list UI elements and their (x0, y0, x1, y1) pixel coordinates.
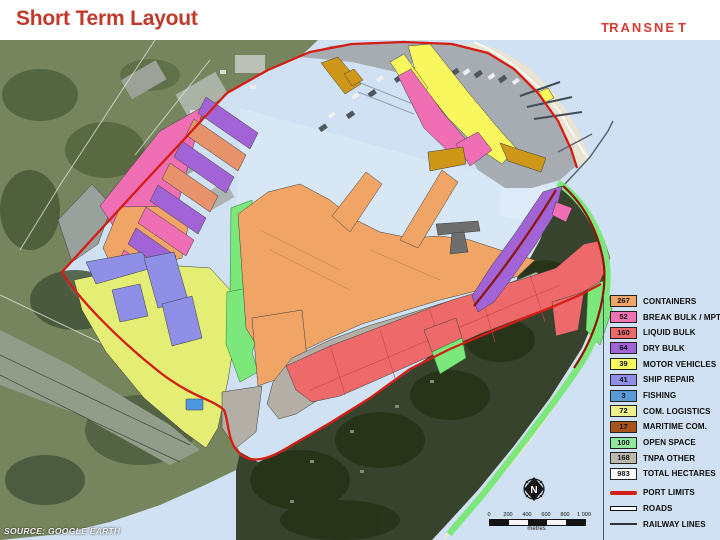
transnet-logo: TRANSNET (599, 20, 686, 35)
legend-swatch: 100 (610, 437, 637, 449)
legend-item: 3FISHING (610, 389, 720, 402)
legend-swatch: 41 (610, 374, 637, 386)
legend-swatch: 168 (610, 452, 637, 464)
legend-label: LIQUID BULK (643, 328, 696, 337)
logo-letter: R (609, 20, 620, 35)
legend-swatch: 983 (610, 468, 637, 480)
slide-header: Short Term Layout TRANSNET (0, 0, 720, 40)
scale-tick: 600 (537, 512, 555, 518)
legend-label: MARITIME COM. (643, 422, 707, 431)
legend-line-swatch (610, 491, 637, 495)
legend-line-item: RAILWAY LINES (610, 519, 720, 530)
slide: Short Term Layout TRANSNET (0, 0, 720, 540)
scale-tick: 400 (518, 512, 536, 518)
legend-label: TOTAL HECTARES (643, 469, 716, 478)
legend-area-items: 267CONTAINERS52BREAK BULK / MPT160LIQUID… (610, 295, 720, 480)
logo-letter: E (665, 20, 676, 35)
legend-swatch: 17 (610, 421, 637, 433)
legend-item: 100OPEN SPACE (610, 436, 720, 449)
legend-item: 983TOTAL HECTARES (610, 468, 720, 481)
legend-item: 267CONTAINERS (610, 295, 720, 308)
logo-letter: T (676, 20, 686, 35)
legend-line-item: PORT LIMITS (610, 487, 720, 498)
scale-bar: 02004006008001 000 metres (489, 512, 599, 534)
scale-tick: 1 000 (575, 512, 593, 518)
legend-line-swatch (610, 523, 637, 525)
legend-label: ROADS (643, 504, 672, 513)
page-title: Short Term Layout (16, 7, 198, 31)
legend-swatch: 3 (610, 390, 637, 402)
legend-swatch: 267 (610, 295, 637, 307)
legend-label: SHIP REPAIR (643, 375, 694, 384)
scale-unit-label: metres (489, 526, 584, 532)
legend-label: COM. LOGISTICS (643, 407, 711, 416)
legend-swatch: 160 (610, 327, 637, 339)
legend-item: 39MOTOR VEHICLES (610, 358, 720, 371)
legend-label: FISHING (643, 391, 676, 400)
source-note: SOURCE: GOOGLE EARTH (4, 526, 120, 536)
scale-tick: 200 (499, 512, 517, 518)
logo-letter: S (643, 20, 654, 35)
legend-item: 41SHIP REPAIR (610, 373, 720, 386)
legend-label: PORT LIMITS (643, 488, 695, 497)
scale-tick: 0 (480, 512, 498, 518)
legend: 267CONTAINERS52BREAK BULK / MPT160LIQUID… (603, 295, 720, 540)
legend-item: 17MARITIME COM. (610, 421, 720, 434)
logo-letter: A (621, 20, 632, 35)
legend-item: 64DRY BULK (610, 342, 720, 355)
legend-label: BREAK BULK / MPT (643, 313, 720, 322)
legend-swatch: 39 (610, 358, 637, 370)
legend-label: RAILWAY LINES (643, 520, 706, 529)
logo-letter: N (654, 20, 665, 35)
north-arrow: N (517, 474, 551, 513)
legend-line-swatch (610, 506, 637, 511)
scale-tick: 800 (556, 512, 574, 518)
legend-swatch: 72 (610, 405, 637, 417)
legend-item: 52BREAK BULK / MPT (610, 311, 720, 324)
legend-item: 168TNPA OTHER (610, 452, 720, 465)
legend-label: MOTOR VEHICLES (643, 360, 716, 369)
legend-label: TNPA OTHER (643, 454, 695, 463)
north-label: N (530, 485, 537, 496)
legend-label: OPEN SPACE (643, 438, 696, 447)
scale-bar-segments (489, 519, 586, 526)
legend-label: CONTAINERS (643, 297, 696, 306)
logo-letter: N (632, 20, 643, 35)
legend-item: 160LIQUID BULK (610, 326, 720, 339)
legend-line-item: ROADS (610, 503, 720, 514)
legend-label: DRY BULK (643, 344, 685, 353)
legend-swatch: 52 (610, 311, 637, 323)
logo-letter: T (599, 20, 609, 35)
legend-line-items: PORT LIMITSROADSRAILWAY LINES (610, 487, 720, 529)
legend-swatch: 64 (610, 342, 637, 354)
legend-item: 72COM. LOGISTICS (610, 405, 720, 418)
